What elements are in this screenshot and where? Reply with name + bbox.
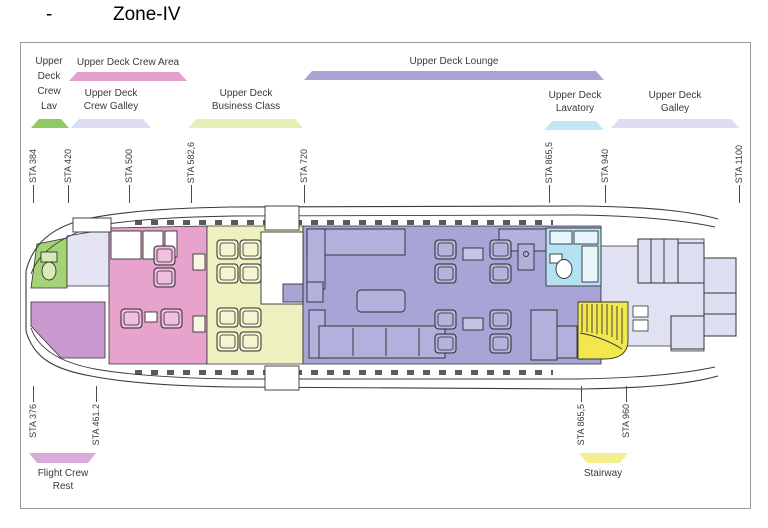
sta-label: STA 960 [621, 404, 631, 438]
zone-bracket-crew-area [69, 72, 187, 81]
page-title: Zone-IV [113, 4, 181, 26]
sta-marker-384: STA 384 [26, 135, 40, 203]
sta-label: STA 582,6 [186, 142, 196, 183]
sta-tick [96, 386, 97, 402]
sta-label: STA 940 [600, 149, 610, 183]
sta-marker-376: STA 376 [26, 386, 40, 438]
zone-bracket-business [188, 119, 303, 128]
sta-label: STA 1100 [734, 145, 744, 183]
zone-bracket-lavatory [544, 121, 604, 130]
diagram-frame: Upper Deck Crew Lav Upper Deck Crew Area… [20, 42, 751, 509]
zone-bracket-crew-lav [31, 119, 69, 128]
sta-label: STA 500 [124, 149, 134, 183]
sta-marker-582-6: STA 582,6 [184, 135, 198, 203]
sta-marker-720: STA 720 [297, 135, 311, 203]
sta-marker-500: STA 500 [122, 135, 136, 203]
sta-label: STA 461.2 [91, 404, 101, 445]
zone-bracket-lounge [304, 71, 604, 80]
zone-bracket-flight-crew-rest [29, 453, 96, 463]
sta-marker-865-5: STA 865,5 [542, 135, 556, 203]
sta-marker-420: STA 420 [61, 135, 75, 203]
zone-bracket-galley [611, 119, 739, 128]
zone-label-crew-area: Upper Deck Crew Area [68, 56, 188, 69]
zone-bracket-crew-galley [71, 119, 151, 128]
sta-marker-940: STA 940 [598, 135, 612, 203]
sta-label: STA 865,5 [544, 142, 554, 183]
sta-marker-960: STA 960 [619, 386, 633, 438]
sta-label: STA 720 [299, 149, 309, 183]
sta-label: STA 420 [63, 149, 73, 183]
zone-label-galley: Upper Deck Galley [625, 89, 725, 115]
crew-lav-fixtures [41, 252, 57, 280]
page: - Zone-IV Upper Deck Crew Lav Upper Deck… [0, 0, 768, 528]
zone-crew-galley-shape [67, 229, 109, 286]
sta-label: STA 865,5 [576, 404, 586, 445]
zone-bracket-stairway [579, 453, 628, 463]
lavatory-fixtures [546, 228, 601, 286]
zone-label-crew-galley: Upper Deck Crew Galley [61, 87, 161, 113]
title-bullet: - [46, 4, 52, 26]
zone-label-flight-crew-rest: Flight Crew Rest [23, 467, 103, 493]
zone-label-lounge: Upper Deck Lounge [354, 55, 554, 68]
stairway-shape [578, 302, 628, 359]
sta-tick [33, 386, 34, 402]
sta-label: STA 376 [28, 404, 38, 438]
sta-label: STA 384 [28, 149, 38, 183]
sta-marker-461-2: STA 461.2 [89, 386, 103, 445]
fuselage-plan-svg [21, 196, 751, 401]
sta-tick [626, 386, 627, 402]
zone-label-stairway: Stairway [553, 467, 653, 480]
zone-label-lavatory: Upper Deck Lavatory [525, 89, 625, 115]
sta-marker-865-5-b: STA 865,5 [574, 386, 588, 445]
sta-marker-1100: STA 1100 [732, 135, 746, 203]
sta-tick [581, 386, 582, 402]
zone-label-business: Upper Deck Business Class [176, 87, 316, 113]
